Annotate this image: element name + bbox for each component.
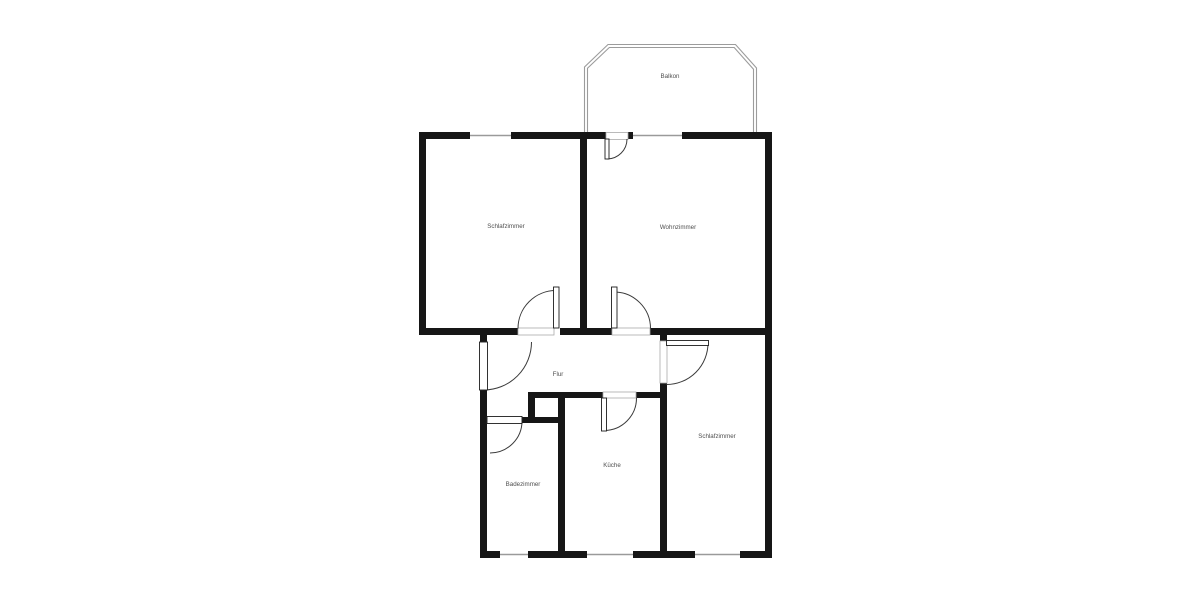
- wall-segment: [628, 132, 633, 139]
- badezimmer-door-leaf: [487, 417, 522, 424]
- wall-segment: [528, 551, 587, 558]
- wall-segment: [558, 392, 565, 558]
- schlafzimmer-1-door-leaf: [554, 287, 560, 328]
- wall-segment: [633, 551, 695, 558]
- room-label-balkon: Balkon: [661, 73, 680, 80]
- wall-segment: [480, 551, 500, 558]
- entry-door-leaf: [480, 342, 488, 390]
- wall-segment: [480, 335, 487, 342]
- room-label-flur: Flur: [553, 371, 564, 378]
- wall-segment: [765, 132, 772, 558]
- wall-segment: [419, 132, 470, 139]
- schlafzimmer-1-door-opening: [518, 328, 554, 335]
- schlafzimmer-2-door-leaf: [667, 341, 709, 346]
- wall-segment: [580, 139, 587, 328]
- kueche-door-opening: [603, 392, 636, 398]
- wall-segment: [560, 328, 612, 335]
- schlafzimmer-2-door-opening: [660, 341, 667, 383]
- wohnzimmer-door-opening: [612, 328, 650, 335]
- room-label-schlafzimmer-2: Schlafzimmer: [698, 433, 735, 440]
- wall-segment: [419, 328, 518, 335]
- wall-segment: [740, 551, 772, 558]
- kueche-door-leaf: [602, 398, 607, 431]
- room-label-schlafzimmer-1: Schlafzimmer: [487, 223, 524, 230]
- wall-segment: [528, 392, 603, 398]
- wohnzimmer-door-leaf: [612, 287, 618, 328]
- floorplan-svg: BalkonSchlafzimmerWohnzimmerFlurKücheBad…: [0, 0, 1200, 600]
- wall-segment: [682, 132, 772, 139]
- wall-segment: [419, 132, 426, 335]
- room-label-kueche: Küche: [603, 462, 621, 469]
- balkon-door-leaf: [605, 139, 609, 159]
- canvas-background: [0, 0, 1200, 600]
- wall-segment: [660, 383, 667, 558]
- room-label-badezimmer: Badezimmer: [506, 481, 541, 488]
- wall-segment: [660, 328, 667, 341]
- room-label-wohnzimmer: Wohnzimmer: [660, 224, 696, 231]
- wall-segment: [650, 328, 772, 335]
- wall-segment: [511, 132, 606, 139]
- balkon-door-opening: [606, 133, 628, 140]
- wall-segment: [480, 390, 487, 558]
- floorplan-page: BalkonSchlafzimmerWohnzimmerFlurKücheBad…: [0, 0, 1200, 600]
